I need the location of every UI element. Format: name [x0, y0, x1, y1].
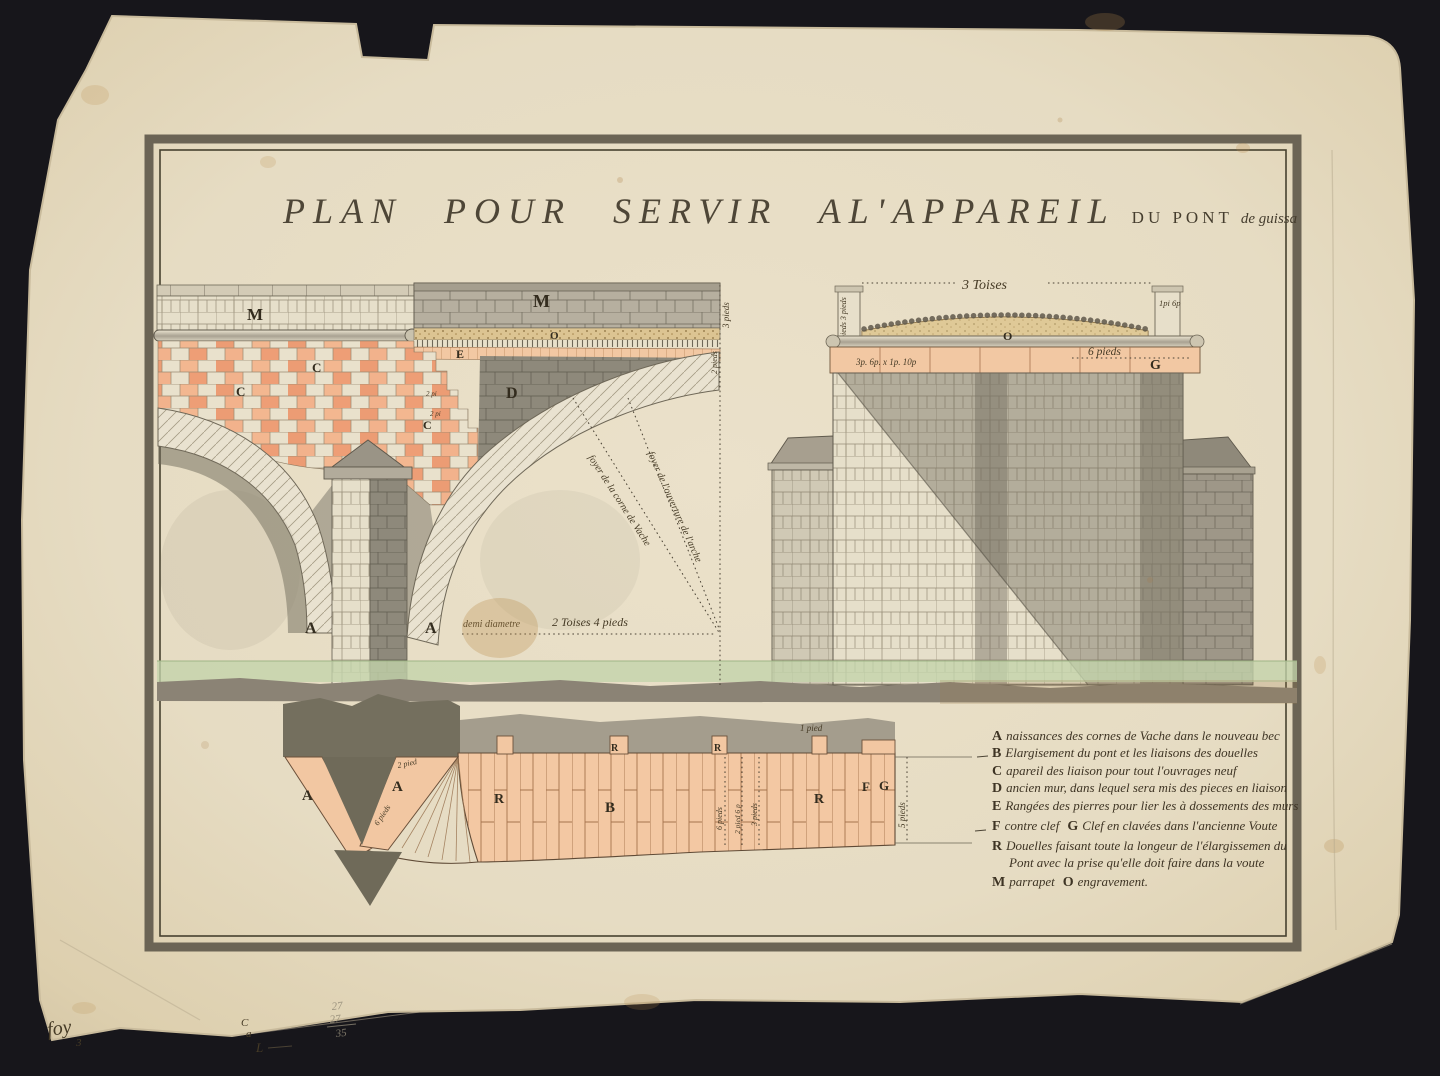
deck-six-pieds: 6 pieds [1088, 346, 1121, 358]
step-dim-b: 2 pi [430, 410, 441, 418]
tab-4 [812, 736, 827, 754]
label-r2: R [611, 743, 619, 754]
legend-entry-a: Anaissances des cornes de Vache dans le … [992, 728, 1310, 744]
label-deck-key: G [1150, 358, 1161, 373]
label-b: B [605, 800, 615, 816]
coping-row [157, 285, 414, 296]
legend-text: parrapet [1009, 874, 1055, 889]
title-main: PLAN POUR SERVIR AL'APPAREIL [283, 190, 1116, 232]
stain [260, 156, 276, 168]
label-rang-band: E [456, 347, 464, 361]
deck-dims: 3p. 6p. x 1p. 10p [855, 357, 917, 367]
label-r1: R [494, 792, 505, 807]
legend-text: ancien mur, dans lequel sera mis des pie… [1006, 780, 1287, 795]
fox-spot [617, 177, 623, 183]
legend-text: naissances des cornes de Vache dans le n… [1006, 728, 1280, 743]
col-three-pieds: 3 pieds [750, 803, 759, 827]
water-line [157, 661, 1297, 682]
drawing-title: PLAN POUR SERVIR AL'APPAREIL DU PONT de … [283, 190, 1297, 232]
comb-row [414, 340, 720, 347]
legend-key: G [1059, 819, 1082, 834]
step-dim-a: 2 pi [426, 390, 437, 398]
edge-three-pieds: 3 pieds [721, 302, 731, 329]
signature: foy [46, 1016, 73, 1041]
legend-text: Douelles faisant toute la longeur de l'é… [1006, 838, 1287, 869]
drawing-canvas: M M O E C C C D A A 2 pi 2 pi 3 Toises 2… [0, 0, 1440, 1076]
legend-entry-m-o: MparrapetOengravement. [992, 874, 1310, 890]
label-deck-pave: O [1003, 329, 1012, 343]
col-two-pied-six: 2 pied 6 p [733, 804, 742, 834]
label-engravement-band: O [550, 330, 559, 342]
legend-text: apareil des liaison pour tout l'ouvrages… [1006, 763, 1237, 778]
legend-text: Rangées des pierres pour lier les à doss… [1005, 798, 1298, 813]
label-parapet-left: M [247, 305, 263, 324]
legend-key: R [992, 839, 1006, 854]
legend-entry-r: RDouelles faisant toute la longeur de l'… [992, 838, 1310, 870]
stain [624, 994, 660, 1010]
legend-key: E [992, 799, 1005, 814]
molding-bar [154, 330, 416, 341]
stain [72, 1002, 96, 1014]
signature-number: 3 [75, 1037, 82, 1049]
central-pier [324, 440, 412, 697]
note-a: a [246, 1028, 252, 1040]
cutwater-right [1181, 437, 1255, 685]
stain [1236, 143, 1250, 153]
legend-key: F [992, 819, 1005, 834]
scanned-drawing: M M O E C C C D A A 2 pi 2 pi 3 Toises 2… [0, 0, 1440, 1076]
label-r3: R [714, 743, 722, 754]
legend-key: B [992, 746, 1005, 761]
engravement-band [414, 328, 720, 340]
end-block [862, 740, 895, 754]
dim-three-toises: 3 Toises [961, 278, 1008, 293]
stain [81, 85, 109, 105]
label-g: G [879, 778, 889, 793]
title-place: de guissa [1241, 211, 1297, 228]
post-right-dims: 1pi 6p [1159, 298, 1181, 308]
legend-text: contre clef [1005, 818, 1060, 833]
cutwater-left [768, 436, 835, 685]
post-cap-left [835, 286, 863, 292]
legend-entry-f-g: Fcontre clefGClef en clavées dans l'anci… [992, 818, 1310, 834]
legend-entry-e: ERangées des pierres pour lier les à dos… [992, 798, 1310, 814]
legend: Anaissances des cornes de Vache dans le … [992, 728, 1310, 892]
legend-entry-b: BElargisement du pont et les liaisons de… [992, 745, 1310, 761]
pencil-figure-2: 27 [329, 1013, 342, 1026]
douelle-band [458, 753, 895, 862]
label-bec-left: A [302, 788, 313, 804]
col-six-pieds: 6 pieds [715, 807, 724, 830]
label-old-wall: D [506, 385, 518, 402]
legend-key: M [992, 875, 1009, 890]
legend-text: Elargisement du pont et les liaisons des… [1005, 745, 1258, 760]
stain-large [462, 598, 538, 658]
edge-two-pieds: 2 pieds [710, 351, 719, 374]
legend-key: D [992, 781, 1006, 796]
legend-entry-c: Capareil des liaison pour tout l'ouvrage… [992, 763, 1310, 779]
parapet-left [157, 296, 414, 330]
label-f: F [862, 779, 870, 794]
opening-wash-left [160, 490, 300, 650]
pencil-figure-1: 27 [331, 1000, 344, 1013]
stain [1085, 13, 1125, 31]
riverbed-brown-tint [940, 680, 1297, 704]
legend-text: engravement. [1078, 874, 1148, 889]
legend-text: Clef en clavées dans l'ancienne Voute [1082, 818, 1277, 833]
title-sub: DU PONT [1132, 208, 1233, 228]
tab-1 [497, 736, 513, 754]
pencil-sum: 35 [334, 1027, 348, 1040]
label-brick1: C [312, 360, 321, 375]
fox-spot [1147, 577, 1153, 583]
parapet-right-coping [414, 283, 720, 291]
label-arch-right: A [425, 620, 437, 637]
right-elevation: 3 Toises 2 pieds 3 pieds 1pi 6p 3p. 6p. … [768, 278, 1255, 685]
legend-key: C [992, 764, 1006, 779]
molding-end-right [1190, 335, 1204, 348]
two-toises-note: 2 Toises 4 pieds [552, 615, 628, 629]
old-foundation-mass [283, 694, 460, 757]
post-cap-right [1152, 286, 1183, 292]
legend-key: O [1055, 875, 1078, 890]
label-brick2: C [236, 384, 245, 399]
molding-end-left [826, 335, 840, 348]
legend-key: A [992, 729, 1006, 744]
parapet-post-right [1155, 288, 1180, 336]
note-l: L [255, 1040, 263, 1055]
label-arch-left: A [305, 620, 317, 637]
fox-spot [201, 741, 209, 749]
stain [1314, 656, 1326, 674]
label-brick3: C [423, 418, 432, 432]
label-r4: R [814, 792, 825, 807]
legend-entry-d: Dancien mur, dans lequel sera mis des pi… [992, 780, 1310, 796]
label-bec-right: A [392, 779, 403, 795]
fox-spot [1058, 118, 1063, 123]
label-parapet-right: M [533, 291, 550, 311]
deck-molding [830, 336, 1200, 347]
sec-one-pied: 1 pied [800, 723, 823, 733]
sec-five-pieds: 5 pieds [897, 802, 907, 828]
